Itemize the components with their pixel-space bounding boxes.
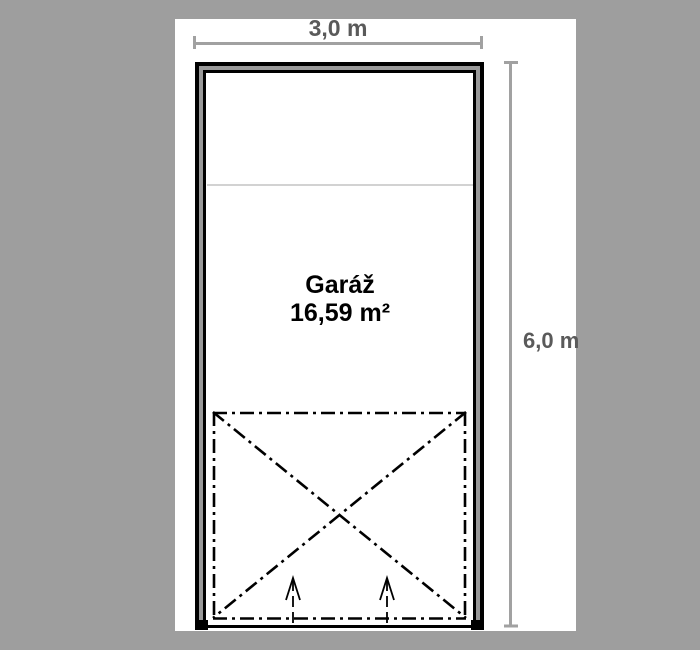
room-name-label: Garáž <box>190 271 490 299</box>
height-dimension-label: 6,0 m <box>523 329 579 353</box>
plan-canvas: 3,0 m 6,0 m Garáž 16,59 m² <box>0 0 700 650</box>
door-threshold <box>195 625 484 628</box>
door-swing-zone <box>213 412 466 620</box>
width-dimension-label: 3,0 m <box>238 16 438 41</box>
room-area-label: 16,59 m² <box>190 299 490 327</box>
height-dimension-line <box>504 62 518 627</box>
